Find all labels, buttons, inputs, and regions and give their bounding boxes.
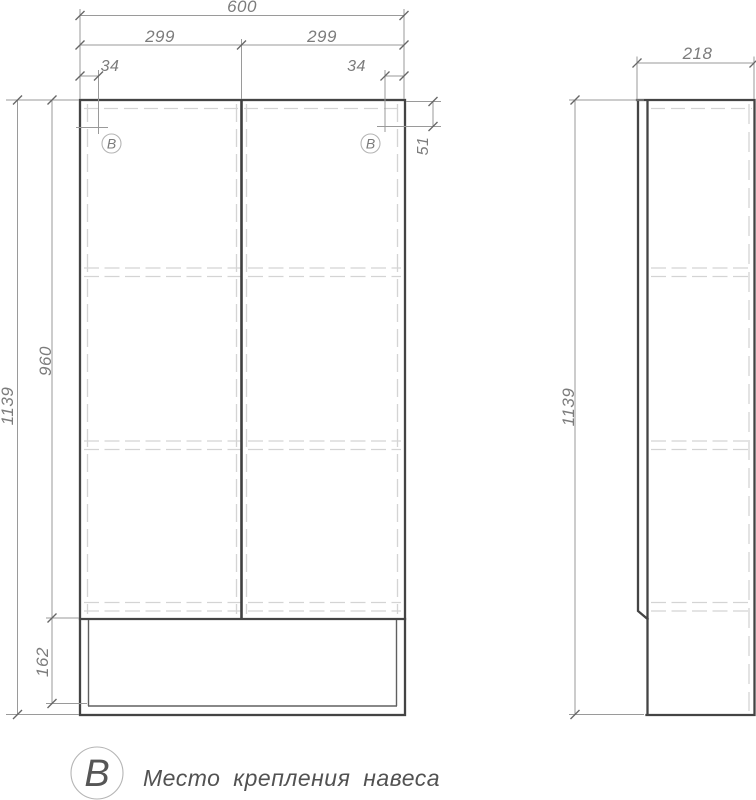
front-top-dimensions: 600 299 299 34 34 51 (76, 0, 442, 155)
front-view (80, 100, 405, 715)
dim-door-height: 960 (36, 346, 55, 376)
mount-marker-label-right: В (366, 136, 375, 152)
side-hidden-shelf-lines (651, 268, 748, 611)
mount-marker-label-left: В (107, 136, 116, 152)
dim-bottom-section-height: 162 (33, 647, 52, 677)
dim-total-width: 600 (227, 0, 257, 16)
dim-mount-offset-left: 34 (101, 58, 120, 75)
dim-side-total-height: 1139 (559, 388, 578, 427)
side-view (637, 100, 755, 715)
dim-mount-offset-top: 51 (415, 137, 432, 156)
dim-front-total-height: 1139 (0, 387, 17, 426)
dim-mount-offset-right: 34 (347, 58, 366, 75)
dim-door-right-width: 299 (306, 27, 337, 46)
front-bottom-niche (88, 620, 397, 706)
legend-text: Место крепления навеса (143, 765, 440, 791)
front-left-dimension-lines (6, 100, 87, 715)
front-top-dimension-lines (76, 9, 441, 134)
technical-drawing: 600 299 299 34 34 51 1139 960 162 218 11… (0, 0, 756, 800)
front-left-dimensions: 1139 960 162 (0, 96, 87, 720)
dim-total-depth: 218 (682, 44, 713, 63)
drawing-canvas: 600 299 299 34 34 51 1139 960 162 218 11… (0, 0, 756, 800)
side-dimension-lines (569, 57, 754, 715)
dim-door-left-width: 299 (144, 27, 175, 46)
side-view-dimensions: 218 1139 (559, 44, 756, 719)
legend-symbol: В (84, 753, 109, 795)
side-cabinet-outline (637, 100, 755, 715)
legend: В Место крепления навеса (71, 747, 440, 799)
